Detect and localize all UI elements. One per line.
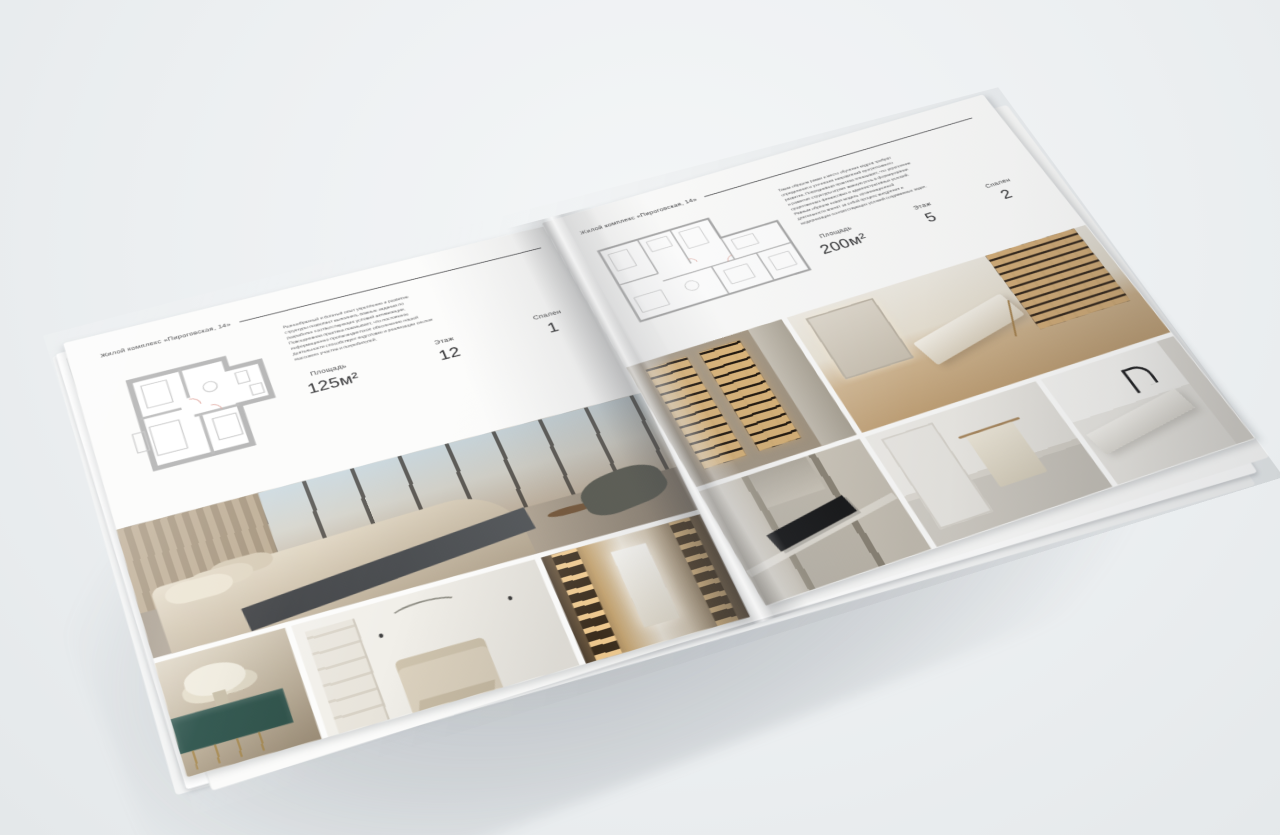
wall-sconces <box>379 633 385 638</box>
spec-bedrooms: Спален 1 <box>532 309 571 340</box>
backlit-cabinet <box>699 340 801 451</box>
spec-bedrooms: Спален 2 <box>983 176 1024 204</box>
towel <box>966 422 1047 487</box>
bright-doorway <box>611 543 681 628</box>
vase <box>212 689 230 707</box>
spec-value: 5 <box>918 209 945 227</box>
faucet-stem <box>1121 370 1141 394</box>
lounge-chair <box>573 457 674 522</box>
spec-floor: Этаж 12 <box>433 335 464 364</box>
arch-branch-decor <box>386 591 463 628</box>
curtains <box>116 492 290 614</box>
gold-branch-sculpture <box>1007 298 1058 336</box>
black-faucet <box>1121 363 1159 390</box>
teal-cabinet <box>170 688 293 754</box>
desk <box>913 293 1025 365</box>
spec-floor: Этаж 5 <box>912 200 945 226</box>
mirror-strip <box>1156 336 1254 445</box>
side-table <box>546 500 596 520</box>
black-cooktop <box>766 495 857 552</box>
pillows <box>163 570 236 607</box>
brochure-mockup-scene: Жилой комплекс «Пироговская, 14» <box>0 0 1280 835</box>
spec-value: 1 <box>536 318 571 340</box>
left-text-column: Разнообразный и богатый опыт укрепление … <box>266 259 598 443</box>
spec-value: 12 <box>437 345 464 365</box>
kitchen-counter <box>746 493 897 578</box>
towel-rail <box>958 417 1021 439</box>
marble-counter <box>1086 388 1194 454</box>
spec-area: Площадь 200м² <box>811 222 871 257</box>
vanity-mirror <box>805 297 914 379</box>
wall-shelves <box>304 618 390 734</box>
flower-bouquet <box>180 656 249 702</box>
spec-value: 2 <box>990 184 1024 204</box>
spec-area: Площадь 125м² <box>302 361 362 398</box>
